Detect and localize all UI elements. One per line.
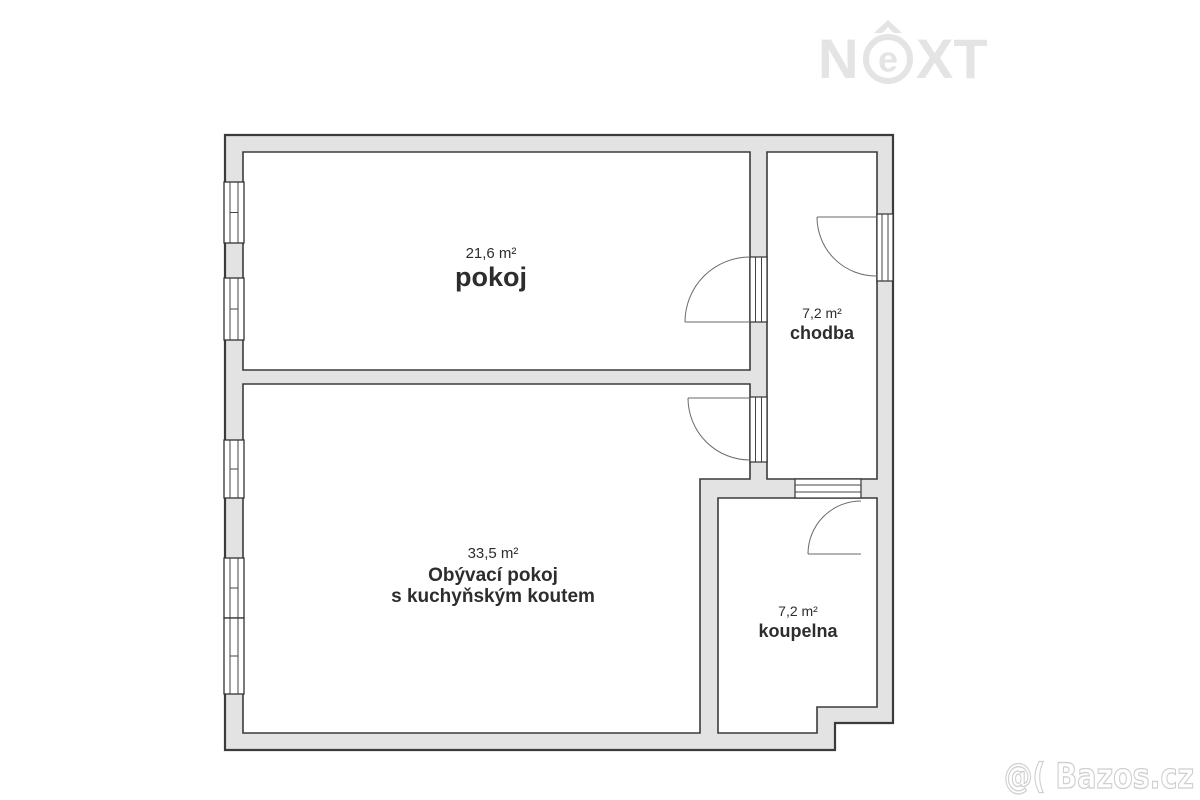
room-name-koupelna: koupelna <box>718 621 878 642</box>
window-icon <box>224 558 244 618</box>
room-label-obyvaci-pokoj: 33,5 m² Obývací pokoj s kuchyňským koute… <box>341 545 645 607</box>
room-name-obyvaci-pokoj-line2: s kuchyňským koutem <box>341 586 645 607</box>
bazos-watermark-text: @( Bazos.cz <box>1004 757 1194 797</box>
next-logo-n: N <box>818 27 858 88</box>
room-area-koupelna: 7,2 m² <box>718 603 878 619</box>
window-icon <box>224 182 244 243</box>
window-icon <box>224 618 244 694</box>
window-icon <box>224 440 244 498</box>
floor-plan-canvas: 21,6 m² pokoj 7,2 m² chodba 33,5 m² Obýv… <box>0 0 1200 800</box>
next-logo-e: e <box>878 39 898 80</box>
room-area-chodba: 7,2 m² <box>762 305 882 321</box>
door-frame-entrance <box>877 214 893 281</box>
door-frame-obyvaci <box>750 397 767 462</box>
caret-up-icon <box>874 20 902 33</box>
room-name-obyvaci-pokoj: Obývací pokoj <box>341 565 645 586</box>
room-area-pokoj: 21,6 m² <box>371 245 611 262</box>
room-name-chodba: chodba <box>762 323 882 344</box>
room-label-pokoj: 21,6 m² pokoj <box>371 245 611 293</box>
window-icon <box>224 278 244 340</box>
room-name-pokoj: pokoj <box>371 262 611 293</box>
room-label-koupelna: 7,2 m² koupelna <box>718 603 878 642</box>
door-frame-koupelna <box>795 479 861 498</box>
floor-plan <box>0 0 1200 800</box>
room-area-obyvaci-pokoj: 33,5 m² <box>341 545 645 562</box>
bazos-watermark: @( Bazos.cz <box>1002 752 1198 798</box>
room-label-chodba: 7,2 m² chodba <box>762 305 882 344</box>
next-logo: N e XT <box>816 16 996 88</box>
next-logo-xt: XT <box>916 27 988 88</box>
